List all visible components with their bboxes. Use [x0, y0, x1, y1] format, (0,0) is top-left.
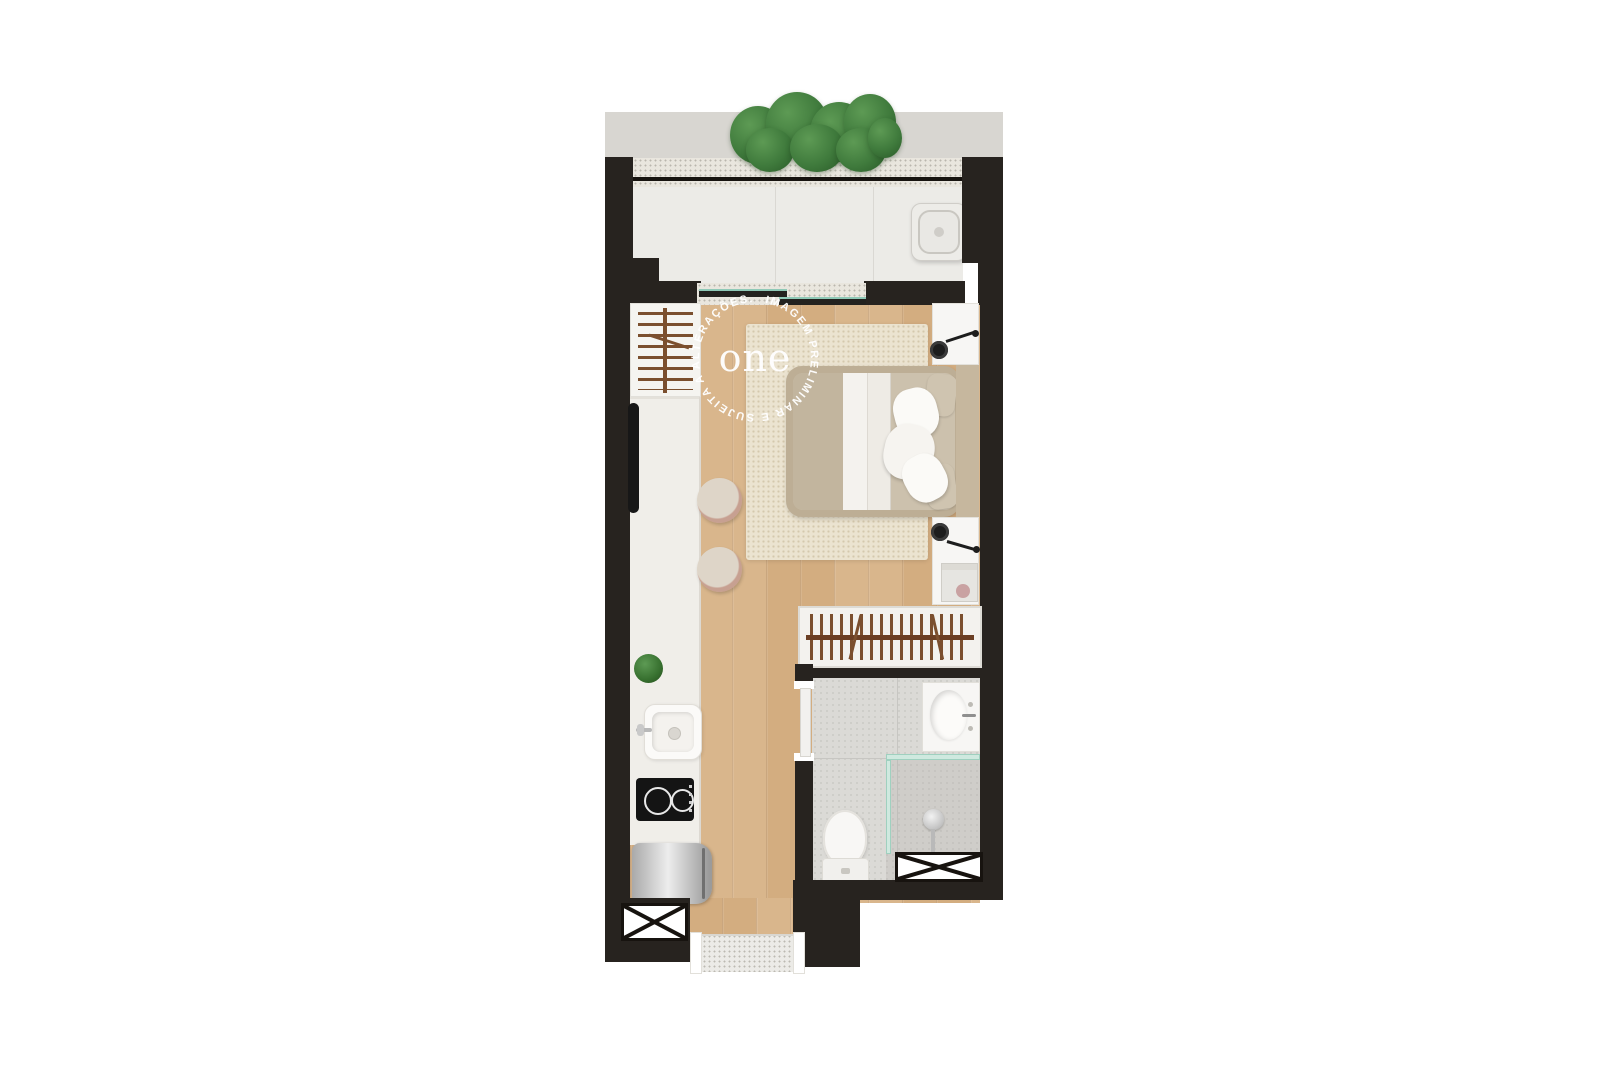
- nightstand-decor: [956, 584, 970, 598]
- entry-corridor-floor: [688, 898, 793, 938]
- wall-lamp-mount: [972, 330, 979, 337]
- shower-glass-panel: [886, 760, 891, 854]
- bed-headboard: [956, 360, 979, 522]
- closet-rack: [798, 606, 982, 668]
- vanity-faucet-icon: [962, 714, 976, 717]
- tv-icon: [628, 403, 639, 513]
- wall-right: [978, 258, 1003, 900]
- planter-hedge-icon: [728, 84, 898, 170]
- wall-bathroom-left-lower: [795, 758, 813, 884]
- sink-faucet-base: [637, 724, 644, 736]
- cooktop-icon: [636, 778, 694, 821]
- vanity-tap-dot: [968, 702, 973, 707]
- wall-lamp-mount: [973, 546, 980, 553]
- wall-bathroom-top: [795, 668, 982, 678]
- wardrobe-rail: [663, 308, 667, 393]
- counter-stool-icon: [697, 478, 742, 523]
- balcony-floor-seam: [775, 187, 776, 283]
- wall-lamp-icon: [930, 341, 948, 359]
- toilet-button: [841, 868, 850, 874]
- entrance-doormat: [702, 934, 793, 972]
- watermark: IMAGEM PRELIMINAR E SUJEITA A ALTERAÇÕES…: [675, 278, 835, 438]
- bed-blanket: [843, 373, 868, 510]
- wall-right-balcony: [962, 157, 1003, 263]
- refrigerator-icon: [632, 843, 712, 904]
- entrance-jamb: [793, 932, 805, 974]
- balcony-floor-seam: [873, 187, 874, 283]
- shower-head-icon: [923, 809, 944, 830]
- entrance-jamb: [690, 932, 702, 974]
- bathroom-sliding-door: [800, 688, 811, 757]
- counter-stool-icon: [697, 547, 742, 592]
- watermark-logo: one: [719, 336, 792, 380]
- kitchen-sink-icon: [644, 704, 702, 760]
- floor-plan-canvas: IMAGEM PRELIMINAR E SUJEITA A ALTERAÇÕES…: [0, 0, 1600, 1080]
- ventilation-shaft-icon: [895, 852, 983, 882]
- counter-plant-icon: [634, 654, 663, 683]
- closet-rail: [806, 635, 974, 640]
- vanity-tap-dot: [968, 726, 973, 731]
- shower-glass-shelf: [886, 754, 980, 760]
- ventilation-shaft-icon: [621, 903, 688, 941]
- ac-condenser-icon: [911, 203, 967, 261]
- wall-lamp-icon: [931, 523, 949, 541]
